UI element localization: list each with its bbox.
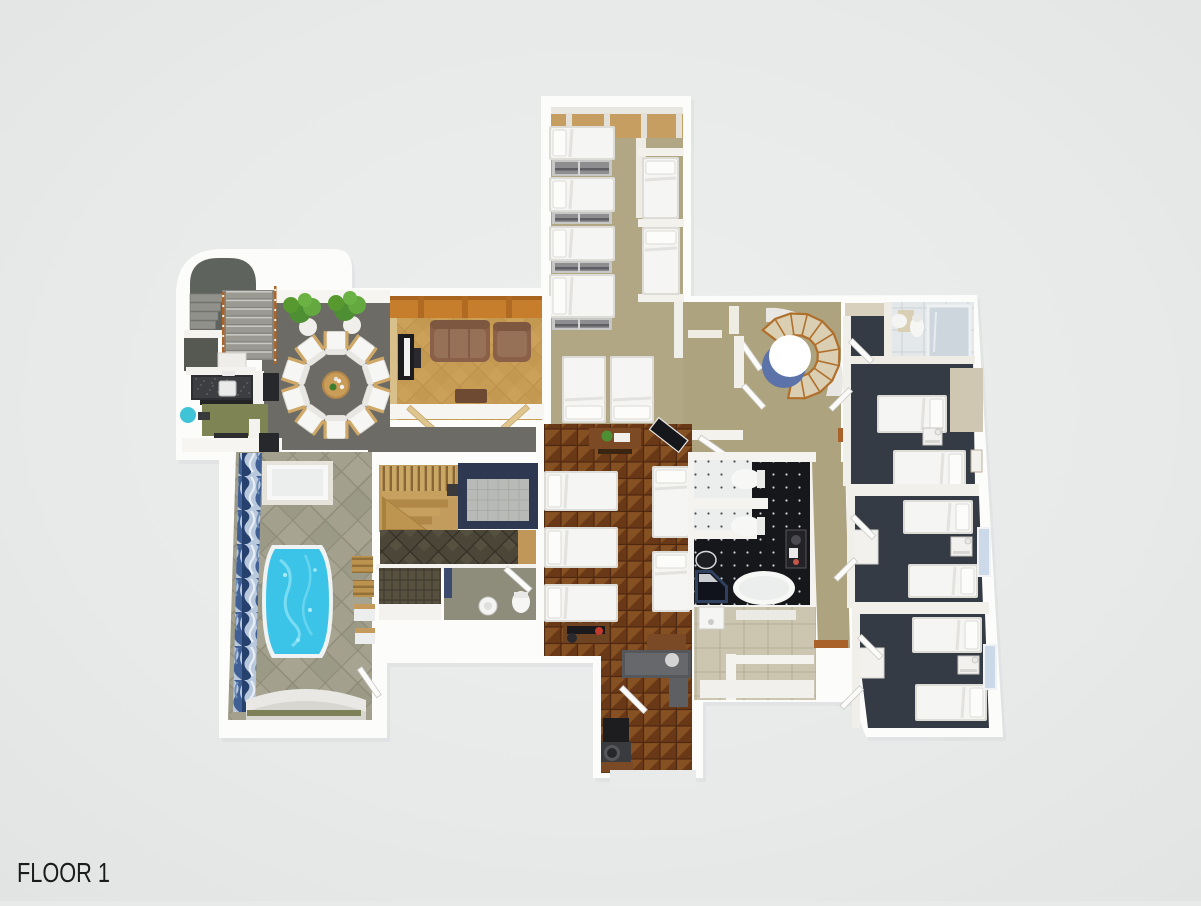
- svg-text:FLOOR 1: FLOOR 1: [17, 857, 110, 888]
